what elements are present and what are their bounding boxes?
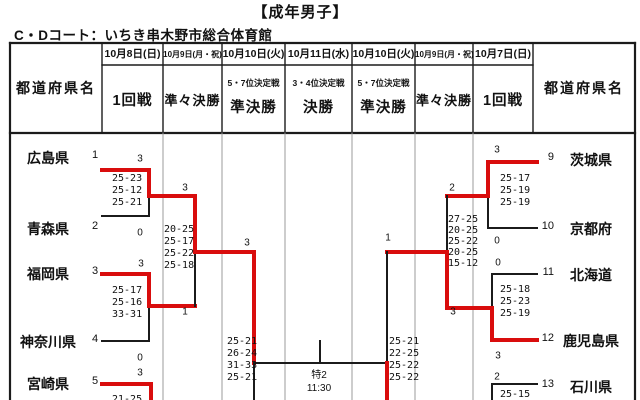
team-seed: 4: [88, 333, 102, 345]
final-time: 11:30: [288, 382, 350, 395]
col4-date: 10月11日(水): [285, 44, 352, 65]
team-seed: 10: [536, 220, 554, 232]
col3-round: 5・7位決定戦 準決勝: [222, 66, 285, 133]
set-count-label: 0: [137, 353, 143, 364]
set-count-label: 3: [182, 183, 188, 194]
final-court-time: 特2 11:30: [288, 369, 350, 395]
set-count-label: 3: [137, 368, 143, 379]
set-count-label: 3: [494, 145, 500, 156]
team-seed: 9: [536, 151, 554, 163]
set-count-label: 0: [494, 236, 500, 247]
set-scores: 25-21 26-24 31-33 25-21: [227, 336, 257, 384]
col4-round: 3・4位決定戦 決勝: [285, 66, 352, 133]
team-name: 北海道: [558, 265, 624, 285]
team-name: 神奈川県: [18, 332, 78, 352]
col3-date: 10月10日(火): [222, 44, 285, 65]
set-count-label: 0: [137, 228, 143, 239]
col7-round: 1回戦: [473, 66, 533, 133]
col5-date: 10月10日(火): [352, 44, 415, 65]
col6-date: 10月9日(月・祝): [415, 44, 473, 65]
set-count-label: 2: [449, 183, 455, 194]
set-scores: 25-23 25-12 25-21: [112, 173, 142, 209]
tournament-sheet: 【成年男子】 C・Dコート：いちき串木野市総合体育館 都道府県名 都道府県名 1…: [0, 0, 640, 400]
prefecture-header-left: 都道府県名: [10, 43, 102, 133]
team-seed: 5: [88, 375, 102, 387]
set-scores: 25-15: [500, 389, 530, 400]
final-court: 特2: [288, 369, 350, 382]
set-count-label: 3: [137, 154, 143, 165]
team-seed: 1: [88, 149, 102, 161]
set-count-label: 0: [495, 258, 501, 269]
team-seed: 3: [88, 265, 102, 277]
set-count-label: 2: [494, 372, 500, 383]
team-name: 鹿児島県: [558, 331, 624, 351]
set-count-label: 1: [385, 233, 391, 244]
col7-date: 10月7日(日): [473, 44, 533, 65]
team-name: 京都府: [558, 219, 624, 239]
team-seed: 2: [88, 220, 102, 232]
col1-date: 10月8日(日): [102, 44, 163, 65]
team-name: 福岡県: [18, 264, 78, 284]
team-name: 宮崎県: [18, 374, 78, 394]
set-scores: 21-25: [112, 394, 142, 400]
set-scores: 27-25 20-25 25-22 20-25 15-12: [448, 214, 478, 269]
team-seed: 13: [536, 378, 554, 390]
team-name: 青森県: [18, 219, 78, 239]
col2-date: 10月9日(月・祝): [163, 44, 222, 65]
col2-round: 準々決勝: [163, 66, 222, 133]
set-count-label: 3: [244, 238, 250, 249]
set-count-label: 1: [182, 307, 188, 318]
set-scores: 25-18 25-23 25-19: [500, 284, 530, 320]
set-scores: 20-25 25-17 25-22 25-18: [164, 224, 194, 272]
set-scores: 25-21 22-25 25-22 25-22: [389, 336, 419, 384]
team-seed: 11: [536, 266, 554, 278]
prefecture-header-right: 都道府県名: [533, 43, 635, 133]
set-count-label: 3: [138, 259, 144, 270]
team-name: 石川県: [558, 377, 624, 397]
set-scores: 25-17 25-16 33-31: [112, 285, 142, 321]
col5-round: 5・7位決定戦 準決勝: [352, 66, 415, 133]
set-count-label: 3: [495, 351, 501, 362]
team-name: 広島県: [18, 148, 78, 168]
team-seed: 12: [536, 332, 554, 344]
set-scores: 25-17 25-19 25-19: [500, 173, 530, 209]
team-name: 茨城県: [558, 150, 624, 170]
col1-round: 1回戦: [102, 66, 163, 133]
set-count-label: 3: [450, 307, 456, 318]
col6-round: 準々決勝: [415, 66, 473, 133]
